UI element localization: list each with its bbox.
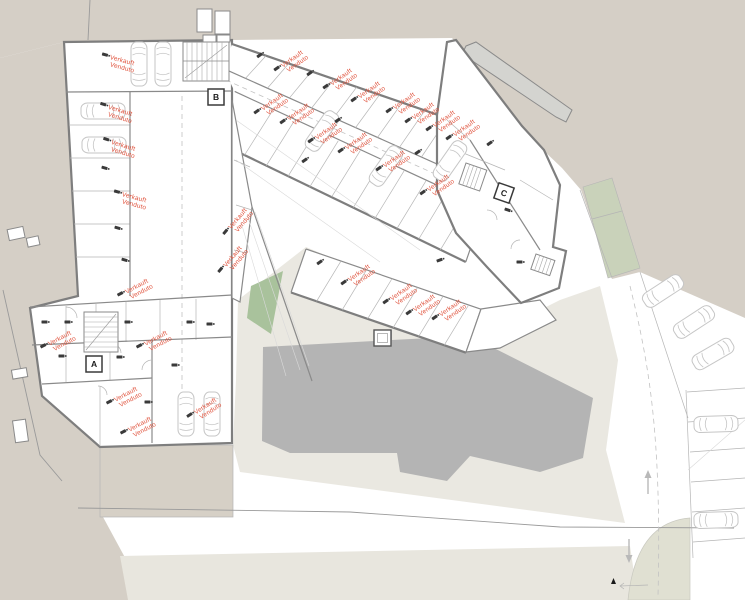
car-icon bbox=[694, 415, 739, 433]
unit-marker bbox=[436, 257, 445, 263]
floor-plan-page: ABC VerkauftVendutoVerkauftVendutoVerkau… bbox=[0, 0, 745, 600]
roof-skylight bbox=[374, 330, 391, 346]
floor-plan-drawing: ABC VerkauftVendutoVerkauftVendutoVerkau… bbox=[0, 0, 745, 600]
stair-b bbox=[183, 42, 229, 81]
terrace-tan bbox=[100, 445, 233, 517]
flow-arrow-up bbox=[645, 470, 652, 494]
car-icon bbox=[694, 511, 739, 529]
car-icon bbox=[155, 42, 171, 86]
stair-core-label-b: B bbox=[208, 89, 224, 105]
stair-a bbox=[84, 312, 118, 352]
stair-core-label-a: A bbox=[86, 356, 102, 372]
car-icon bbox=[671, 303, 717, 340]
stair-core-letter: B bbox=[213, 92, 219, 102]
stair-core-letter: A bbox=[91, 359, 97, 369]
bottom-verge bbox=[120, 546, 638, 600]
car-icon bbox=[690, 336, 736, 372]
